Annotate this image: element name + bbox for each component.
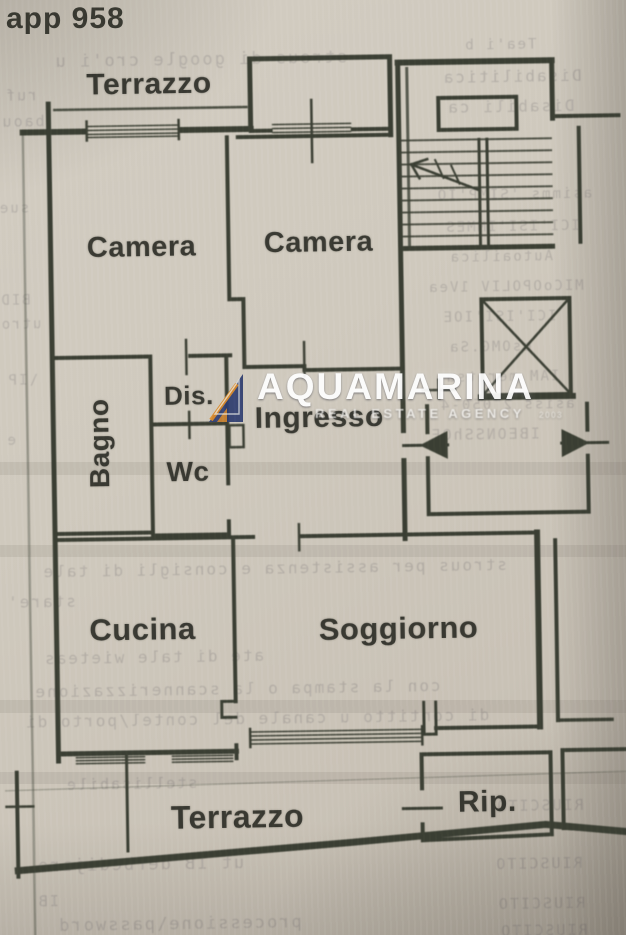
room-label-dis: Dis.: [164, 380, 214, 412]
room-label-camera-left: Camera: [87, 230, 197, 265]
floorplan-scene: strous di google cro'i urufbaousueBIDutr…: [0, 0, 626, 935]
room-label-terrazzo-bottom: Terrazzo: [171, 798, 305, 837]
room-label-wc: Wc: [166, 456, 209, 489]
floorplan-photo: app 958 strous di google cro'i urufbaous…: [0, 0, 626, 935]
room-label-soggiorno: Soggiorno: [319, 609, 479, 648]
room-label-cucina: Cucina: [89, 611, 196, 649]
room-label-terrazzo-top: Terrazzo: [86, 67, 212, 103]
room-label-ingresso: Ingresso: [254, 400, 384, 436]
room-label-rip: Rip.: [458, 785, 517, 820]
room-label-camera-right: Camera: [264, 226, 374, 261]
room-label-bagno: Bagno: [83, 398, 116, 488]
